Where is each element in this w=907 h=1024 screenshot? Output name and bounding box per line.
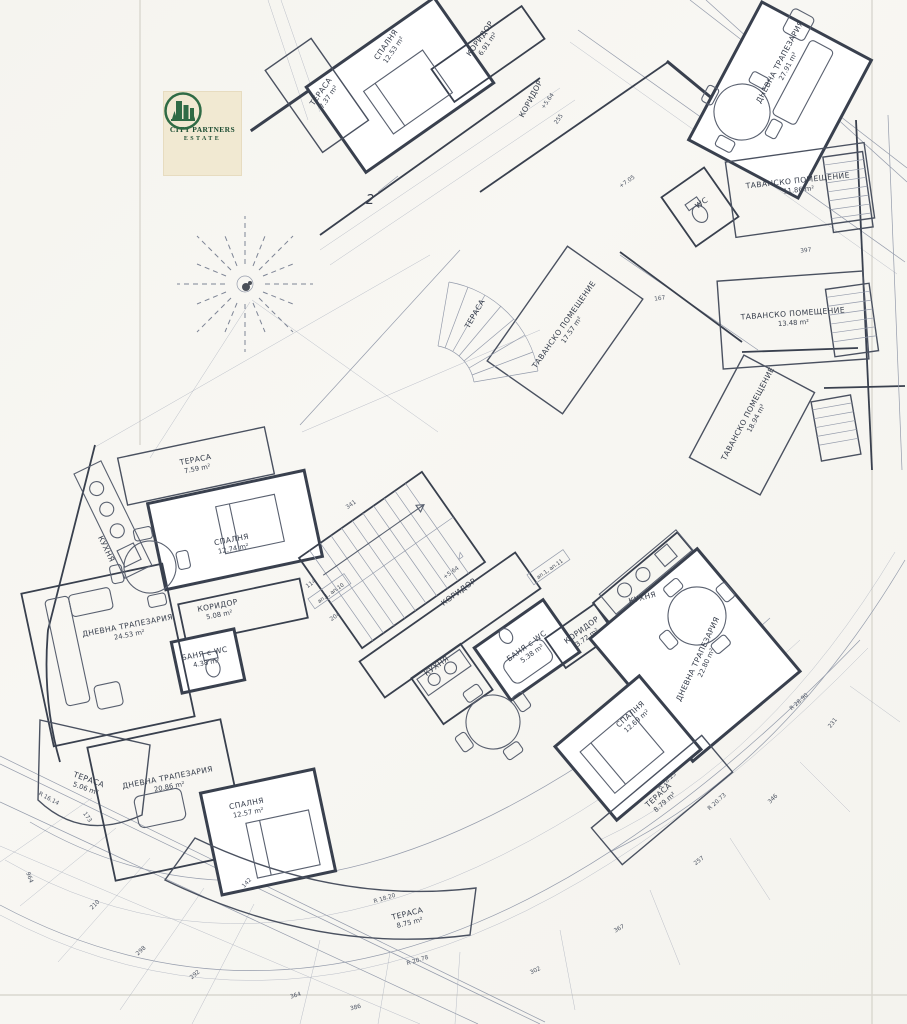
elevation-marks: +5.64 +5.64 +7.05 [437, 92, 636, 581]
svg-text:346: 346 [767, 793, 779, 805]
svg-text:292: 292 [189, 969, 202, 981]
svg-text:367: 367 [613, 924, 626, 935]
svg-text:R 16.14: R 16.14 [37, 791, 60, 807]
svg-text:ТЕРАСА: ТЕРАСА [462, 297, 487, 331]
coffee-table-20-86 [133, 787, 187, 828]
svg-text:964: 964 [24, 871, 34, 884]
svg-text:КУХНЯ: КУХНЯ [96, 534, 116, 563]
svg-text:+5.64: +5.64 [442, 565, 460, 580]
central-staircase [299, 472, 485, 648]
svg-text:R 20.73: R 20.73 [707, 792, 728, 812]
svg-text:204: 204 [329, 611, 342, 623]
svg-text:ТАВАНСКО ПОМЕЩЕНИЕ: ТАВАНСКО ПОМЕЩЕНИЕ [530, 279, 598, 371]
svg-text:257: 257 [693, 855, 706, 867]
svg-text:386: 386 [350, 1004, 363, 1013]
svg-text:397: 397 [800, 247, 812, 254]
svg-text:114: 114 [305, 578, 318, 590]
svg-text:+7.05: +7.05 [618, 174, 636, 189]
svg-text:ап.1, ап.11: ап.1, ап.11 [536, 558, 565, 581]
svg-text:ТАВАНСКО ПОМЕЩЕНИЕ: ТАВАНСКО ПОМЕЩЕНИЕ [719, 366, 777, 463]
svg-text:R 18.20: R 18.20 [373, 893, 397, 905]
room-label: ТАВАНСКО ПОМЕЩЕНИЕ17.57 m² [530, 279, 605, 376]
room-label: ТЕРАСА8.75 m² [390, 905, 427, 931]
section-mark: 2 [366, 176, 398, 208]
svg-text:364: 364 [290, 991, 303, 1000]
sofa-left-living [45, 587, 134, 716]
svg-text:R 28.90: R 28.90 [789, 692, 810, 712]
svg-text:173: 173 [81, 811, 92, 824]
logo-subtitle: ESTATE [184, 136, 221, 142]
svg-text:298: 298 [135, 945, 147, 957]
room-label: ТЕРАСА7.59 m² [178, 452, 214, 476]
room-label: КОРИДОР5.08 m² [197, 597, 241, 622]
logo-emblem-icon [163, 91, 203, 131]
svg-text:13.48 m²: 13.48 m² [778, 318, 810, 328]
room-label: ТАВАНСКО ПОМЕЩЕНИЕ18.94 m² [719, 366, 784, 468]
curved-staircase [438, 282, 538, 382]
room-label: ТЕРАСА5.06 m² [68, 770, 106, 798]
city-partners-estate-logo: CITY PARTNERS ESTATE [163, 91, 242, 176]
room-label: ТЕРАСА [462, 297, 487, 331]
sun-symbol [177, 216, 313, 352]
svg-text:341: 341 [345, 499, 358, 511]
floor-plan-drawing: 2 СПАЛНЯ12.53 m² ТЕРАСА7.37 m² КОРИДОР6.… [0, 0, 907, 1024]
dimension-numbers: 964 364 386 298 292 210 142 173 302 367 … [24, 113, 839, 1012]
scanned-floor-plan-page: 2 СПАЛНЯ12.53 m² ТЕРАСА7.37 m² КОРИДОР6.… [0, 0, 907, 1024]
svg-text:2: 2 [366, 193, 374, 208]
svg-text:167: 167 [654, 295, 666, 303]
svg-text:231: 231 [827, 717, 839, 730]
svg-text:ап.1, ап.10: ап.1, ап.10 [317, 582, 346, 605]
svg-text:210: 210 [89, 899, 101, 911]
svg-text:302: 302 [529, 966, 542, 976]
svg-text:255: 255 [554, 113, 565, 126]
room-label: КУХНЯ [96, 534, 116, 563]
svg-text:+5.64: +5.64 [541, 92, 556, 110]
room-label: ДНЕВНА ТРАПЕЗАРИЯ24.53 m² [81, 612, 175, 647]
